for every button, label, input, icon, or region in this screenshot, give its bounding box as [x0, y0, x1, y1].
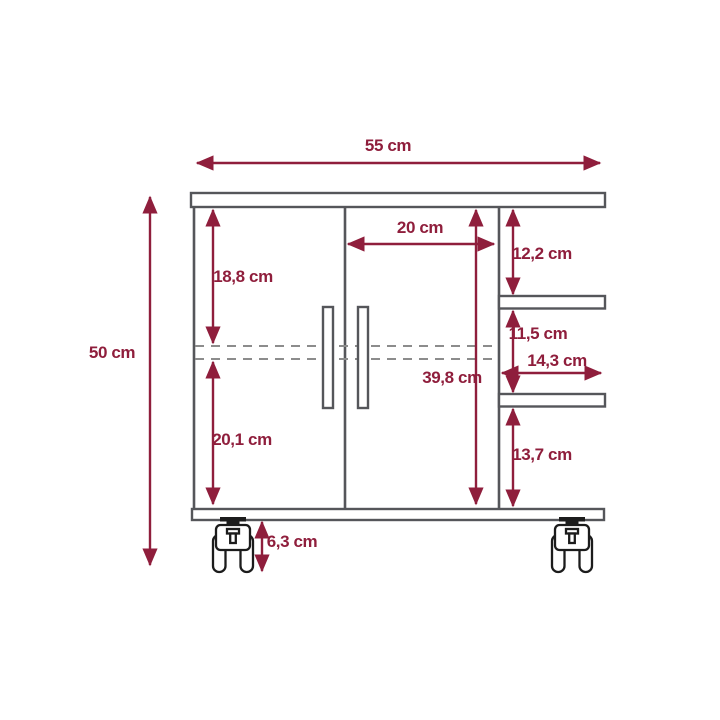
side-shelf-upper: [499, 296, 605, 309]
diagram-canvas: 55 cm 50 cm 20 cm 18,8 cm 20,1 cm 12,2 c: [0, 0, 720, 720]
dim-label-lower-shelf-space: 13,7 cm: [512, 445, 572, 464]
dim-label-upper-shelf-space: 12,2 cm: [512, 244, 572, 263]
dim-label-total-height: 50 cm: [89, 343, 135, 362]
dimension-door-opening-width: 20 cm: [348, 218, 494, 244]
cabinet-bottom-panel: [192, 509, 604, 520]
dim-label-lower-door-section: 20,1 cm: [212, 430, 272, 449]
dimension-total-width: 55 cm: [197, 136, 600, 163]
dim-label-caster-height: 6,3 cm: [267, 532, 318, 551]
caster-left: [213, 517, 253, 572]
door-handle-right: [358, 307, 368, 408]
cabinet-dimension-diagram: 55 cm 50 cm 20 cm 18,8 cm 20,1 cm 12,2 c: [0, 0, 720, 720]
dimension-total-height: 50 cm: [89, 197, 150, 565]
dim-label-middle-shelf-space: 11,5 cm: [509, 324, 568, 343]
dim-label-door-opening-width: 20 cm: [397, 218, 443, 237]
dimension-lower-shelf-space: 13,7 cm: [512, 409, 572, 506]
dimension-lower-door-section: 20,1 cm: [212, 362, 272, 504]
dim-label-upper-door-section: 18,8 cm: [213, 267, 273, 286]
door-handle-left: [323, 307, 333, 408]
dimension-upper-shelf-space: 12,2 cm: [512, 210, 572, 294]
side-shelf-lower: [499, 394, 605, 407]
dimension-caster-height: 6,3 cm: [262, 522, 318, 571]
dim-label-total-width: 55 cm: [365, 136, 411, 155]
cabinet-top-panel: [191, 193, 605, 207]
dim-label-shelf-width: 14,3 cm: [527, 351, 587, 370]
dim-label-side-column-height: 39,8 cm: [422, 368, 482, 387]
dimension-upper-door-section: 18,8 cm: [213, 210, 273, 343]
dimension-side-column-height: 39,8 cm: [422, 210, 482, 504]
caster-right: [552, 517, 592, 572]
dimension-shelf-width: 14,3 cm: [502, 351, 601, 373]
